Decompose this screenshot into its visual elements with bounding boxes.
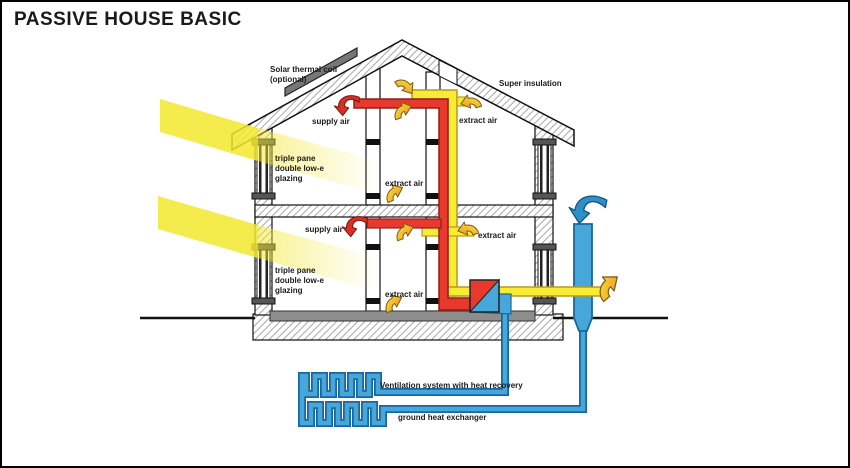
diagram-canvas: Solar thermal coil (optional) Super insu… xyxy=(2,2,848,466)
supply-air-attic-label: supply air xyxy=(312,117,350,126)
glazing-lower-label-2: double low-e xyxy=(275,276,324,285)
passive-house-diagram: Solar thermal coil (optional) Super insu… xyxy=(0,0,850,468)
extract-air-upper-room-label: extract air xyxy=(385,179,423,188)
glazing-upper-label-1: triple pane xyxy=(275,154,316,163)
extract-air-lower-ceiling-label: extract air xyxy=(478,231,516,240)
intake-tower xyxy=(574,224,592,331)
glazing-lower-label-3: glazing xyxy=(275,286,303,295)
ground-heat-exchanger-label: ground heat exchanger xyxy=(398,413,486,422)
solar-coil-label: Solar thermal coil xyxy=(270,65,337,74)
exhaust-air-arrow xyxy=(591,270,624,302)
sun-ray-upper xyxy=(160,99,258,161)
glazing-upper-label-2: double low-e xyxy=(275,164,324,173)
heat-exchanger-unit xyxy=(470,280,511,314)
extract-air-lower-room-label: extract air xyxy=(385,290,423,299)
ventilation-system-label: Ventilation system with heat recovery xyxy=(380,381,523,390)
super-insulation-label: Super insulation xyxy=(499,79,562,88)
supply-air-lower-label: supply air xyxy=(305,225,343,234)
extract-air-attic-label: extract air xyxy=(459,116,497,125)
glazing-upper-label-3: glazing xyxy=(275,174,303,183)
page-title: PASSIVE HOUSE BASIC xyxy=(14,9,242,30)
fresh-air-intake-arrow xyxy=(569,196,607,223)
roof xyxy=(232,40,574,150)
supply-arrow-lower xyxy=(341,215,369,237)
glazing-lower-label-1: triple pane xyxy=(275,266,316,275)
solar-coil-label-2: (optional) xyxy=(270,75,307,84)
sun-ray-lower xyxy=(158,196,258,258)
mid-floor-slab xyxy=(255,205,553,217)
